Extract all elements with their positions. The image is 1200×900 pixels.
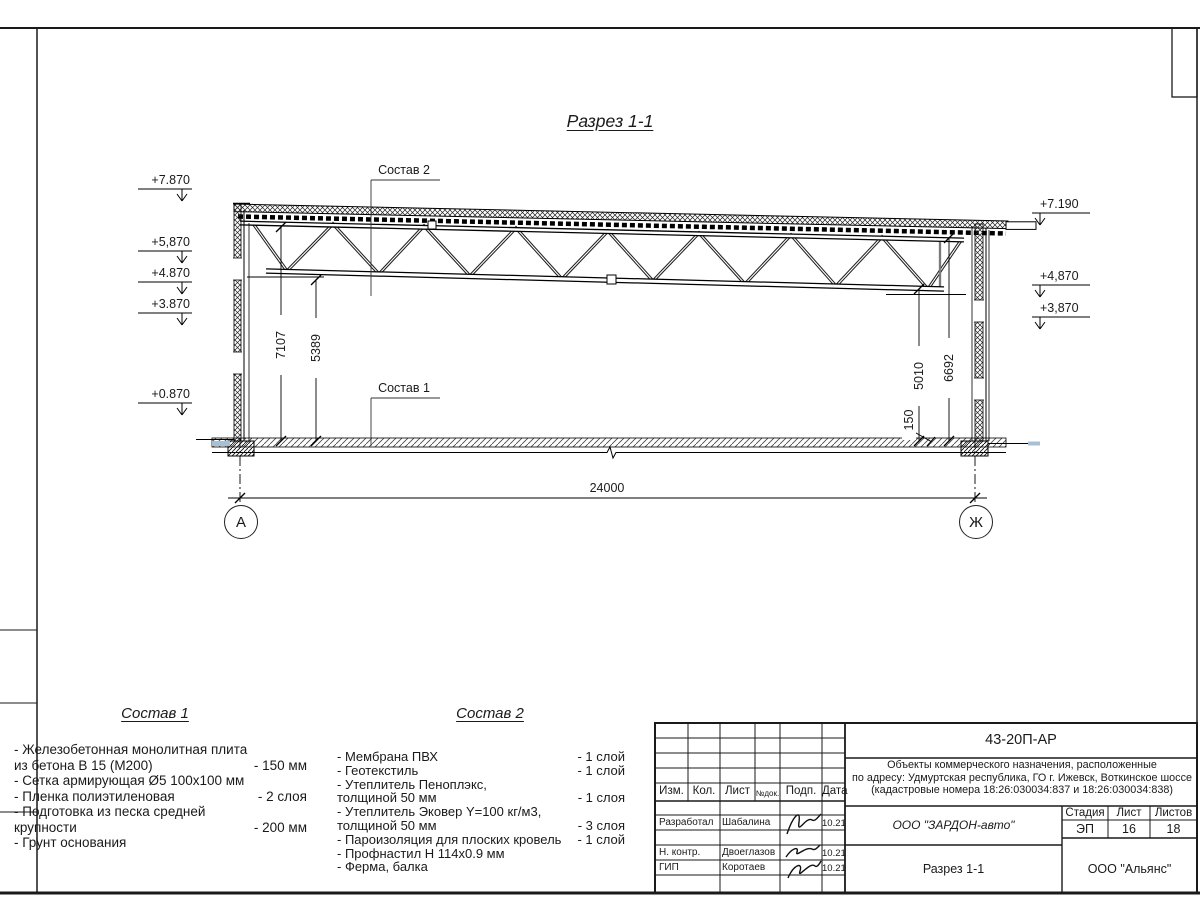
sheet-label: Лист xyxy=(1108,807,1150,819)
sheets-label: Листов xyxy=(1150,807,1197,819)
project-description-line1: Объекты коммерческого назначения, распол… xyxy=(850,759,1194,771)
list-item: - Пленка полиэтиленовая- 2 слоя xyxy=(14,789,307,805)
list-item: крупности- 200 мм xyxy=(14,820,307,836)
col-list: Лист xyxy=(720,785,755,797)
dim-height-6692: 6692 xyxy=(942,338,956,398)
sheet-name: Разрез 1-1 xyxy=(845,862,1062,876)
callout-sostav1: Состав 1 xyxy=(354,381,454,395)
elevation-label: +3.870 xyxy=(132,297,190,311)
signer-name: Шабалина xyxy=(722,817,779,828)
dim-height-5389: 5389 xyxy=(309,318,323,378)
signer-date: 10.21 xyxy=(822,863,845,874)
col-izm: Изм. xyxy=(655,785,688,797)
doc-number: 43-20П-АР xyxy=(845,732,1197,748)
list-item: - Утеплитель Эковер Y=100 кг/м3, xyxy=(337,805,625,819)
col-ndok: №док. xyxy=(755,789,780,798)
dim-height-5010: 5010 xyxy=(912,346,926,406)
signer-name: Коротаев xyxy=(722,862,779,873)
elevation-label: +7.870 xyxy=(132,173,190,187)
developer-org: ООО "ЗАРДОН-авто" xyxy=(845,818,1062,832)
project-description-line2: по адресу: Удмуртская республика, ГО г. … xyxy=(850,772,1194,784)
elevation-label: +4,870 xyxy=(1040,269,1100,283)
stage-label: Стадия xyxy=(1062,807,1108,819)
dim-span: 24000 xyxy=(557,481,657,495)
col-podp: Подп. xyxy=(780,785,822,797)
sostav1-title: Состав 1 xyxy=(55,705,255,722)
list-item: - Пароизоляция для плоских кровель- 1 сл… xyxy=(337,833,625,847)
list-item: - Железобетонная монолитная плита xyxy=(14,742,307,758)
axis-bubble-left: А xyxy=(224,505,258,539)
signer-date: 10.21 xyxy=(822,848,845,859)
dim-height-7107: 7107 xyxy=(274,315,288,375)
list-item: толщиной 50 мм- 1 слоя xyxy=(337,791,625,805)
list-item: - Мембрана ПВХ- 1 слой xyxy=(337,750,625,764)
elevation-label: +3,870 xyxy=(1040,301,1100,315)
apron-left xyxy=(212,441,230,446)
col-kol: Кол. xyxy=(688,785,720,797)
stage-value: ЭП xyxy=(1062,822,1108,836)
list-item: - Утеплитель Пеноплэкс, xyxy=(337,778,625,792)
elevation-label: +0.870 xyxy=(132,387,190,401)
list-item: - Подготовка из песка средней xyxy=(14,804,307,820)
axis-bubble-right: Ж xyxy=(959,505,993,539)
axis-letter: Ж xyxy=(969,514,983,531)
list-item: из бетона В 15 (М200)- 150 мм xyxy=(14,758,307,774)
list-item: толщиной 50 мм- 3 слоя xyxy=(337,819,625,833)
list-item: - Геотекстиль- 1 слой xyxy=(337,764,625,778)
section-title: Разрез 1-1 xyxy=(515,111,705,132)
sheet-number: 16 xyxy=(1108,822,1150,836)
signer-name: Двоеглазов xyxy=(722,847,779,858)
col-data: Дата xyxy=(822,785,845,797)
dim-slab-150: 150 xyxy=(902,400,916,440)
elevation-label: +5,870 xyxy=(132,235,190,249)
list-item: - Грунт основания xyxy=(14,835,307,851)
elevation-label: +7.190 xyxy=(1040,197,1100,211)
sostav1-list: - Железобетонная монолитная плита из бет… xyxy=(14,742,307,851)
apron-right xyxy=(1028,442,1040,446)
signature-scribbles xyxy=(786,814,821,878)
callout-sostav2: Состав 2 xyxy=(354,163,454,177)
drawing-sheet: Разрез 1-1 Состав 2 Состав 1 +7.870 +5,8… xyxy=(0,0,1200,900)
signer-date: 10.21 xyxy=(822,818,845,829)
list-item: - Сетка армирующая Ø5 100х100 мм xyxy=(14,773,307,789)
list-item: - Ферма, балка xyxy=(337,860,625,874)
list-item: - Профнастил Н 114х0.9 мм xyxy=(337,847,625,861)
project-description-line3: (кадастровые номера 18:26:030034:837 и 1… xyxy=(850,784,1194,796)
contractor-org: ООО "Альянс" xyxy=(1062,862,1197,876)
elevation-label: +4.870 xyxy=(132,266,190,280)
sostav2-title: Состав 2 xyxy=(390,705,590,722)
signer-role: ГИП xyxy=(659,862,719,873)
sostav2-list: - Мембрана ПВХ- 1 слой - Геотекстиль- 1 … xyxy=(337,750,625,874)
axis-letter: А xyxy=(236,514,246,531)
signer-role: Н. контр. xyxy=(659,847,719,858)
sheets-total: 18 xyxy=(1150,822,1197,836)
signer-role: Разработал xyxy=(659,817,719,828)
